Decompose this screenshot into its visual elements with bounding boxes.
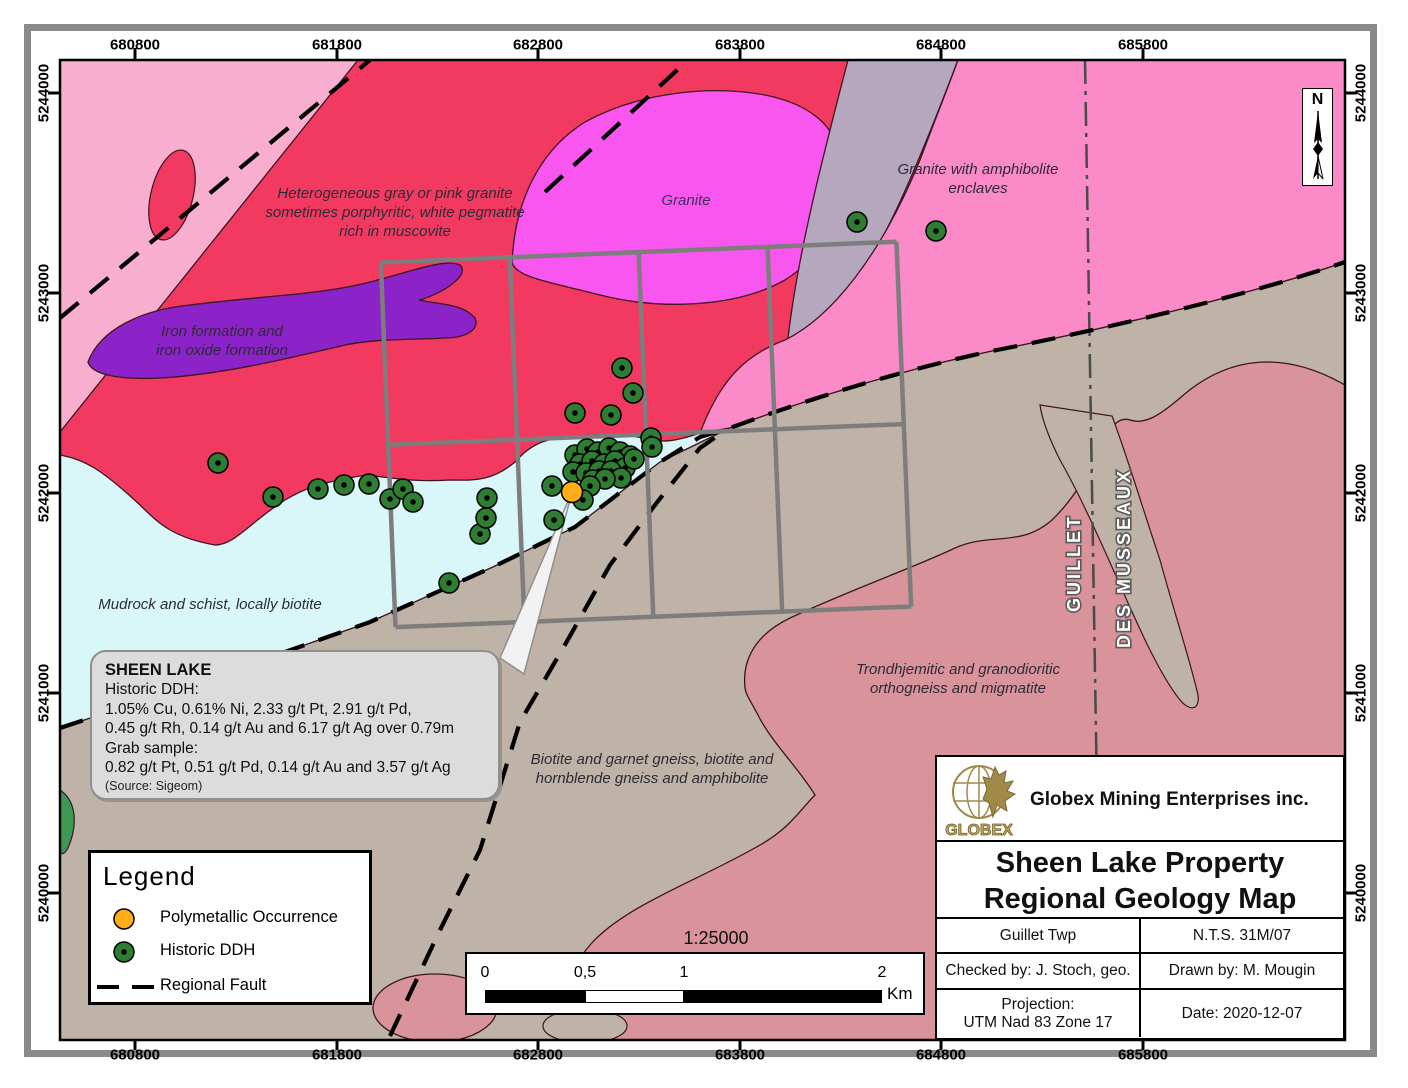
label-mudrock: Mudrock and schist, locally biotite (98, 595, 321, 614)
coordinate-label: 680800 (110, 1047, 160, 1064)
township-nts-row: Guillet Twp N.T.S. 31M/07 (937, 919, 1343, 954)
callout-source: (Source: Sigeom) (105, 778, 498, 794)
legend-title: Legend (103, 861, 196, 892)
projection-date-row: Projection: UTM Nad 83 Zone 17 Date: 202… (937, 990, 1343, 1037)
label-iron-formation: Iron formation and iron oxide formation (156, 322, 288, 360)
legend-box: Legend Polymetallic Occurrence Historic … (88, 850, 372, 1005)
coordinate-label: 680800 (110, 37, 160, 54)
north-label: N (1303, 91, 1332, 109)
company-row: GLOBEX Globex Mining Enterprises inc. (937, 757, 1343, 842)
coordinate-label: 683800 (715, 37, 765, 54)
company-name: Globex Mining Enterprises inc. (1030, 789, 1309, 811)
coordinate-label: 684800 (916, 37, 966, 54)
projection-cell: Projection: UTM Nad 83 Zone 17 (937, 990, 1141, 1037)
callout-title: SHEEN LAKE (105, 660, 498, 680)
coordinate-label: 5243000 (36, 264, 53, 322)
globex-logo-icon: GLOBEX (943, 759, 1031, 841)
title-block: GLOBEX Globex Mining Enterprises inc. Sh… (935, 755, 1345, 1040)
coordinate-label: 681800 (312, 1047, 362, 1064)
coordinate-label: 5240000 (1353, 864, 1370, 922)
map-sheet: GUILLET DES MUSSEAUX Heterogeneous gray … (0, 0, 1408, 1088)
coordinate-label: 684800 (916, 1047, 966, 1064)
label-granite-amphibolite: Granite with amphibolite enclaves (898, 160, 1059, 198)
scale-bar: 0 0,5 1 2 Km (465, 952, 925, 1015)
drawn-by-cell: Drawn by: M. Mougin (1141, 954, 1343, 988)
coordinate-label: 683800 (715, 1047, 765, 1064)
coordinate-label: 5242000 (36, 464, 53, 522)
logo-wordmark: GLOBEX (945, 822, 1013, 839)
coordinate-label: 5242000 (1353, 464, 1370, 522)
coordinate-label: 685800 (1118, 37, 1168, 54)
coordinate-label: 5240000 (36, 864, 53, 922)
coordinate-label: 5244000 (1353, 64, 1370, 122)
label-orthogneiss: Trondhjemitic and granodioritic orthogne… (856, 660, 1060, 698)
label-granite: Granite (661, 191, 710, 210)
north-arrow: N (1302, 88, 1333, 186)
map-title: Sheen Lake Property Regional Geology Map (937, 842, 1343, 919)
scale-unit: Km (887, 984, 913, 1004)
fault-line-icon (97, 975, 155, 999)
legend-item-occurrence: Polymetallic Occurrence (91, 907, 369, 931)
township-cell: Guillet Twp (937, 919, 1141, 952)
coordinate-label: 681800 (312, 37, 362, 54)
coordinate-label: 5244000 (36, 64, 53, 122)
label-heterogeneous-granite: Heterogeneous gray or pink granite somet… (265, 184, 524, 241)
checked-by-cell: Checked by: J. Stoch, geo. (937, 954, 1141, 988)
sheen-lake-callout: SHEEN LAKE Historic DDH: 1.05% Cu, 0.61%… (90, 650, 500, 800)
nts-cell: N.T.S. 31M/07 (1141, 919, 1343, 952)
coordinate-label: 5243000 (1353, 264, 1370, 322)
credits-row: Checked by: J. Stoch, geo. Drawn by: M. … (937, 954, 1343, 990)
scale-seg-1 (485, 990, 585, 1003)
coordinate-label: 685800 (1118, 1047, 1168, 1064)
date-cell: Date: 2020-12-07 (1141, 990, 1343, 1037)
scale-seg-2 (585, 990, 684, 1003)
legend-item-ddh: Historic DDH (91, 940, 369, 964)
legend-item-fault: Regional Fault (91, 975, 369, 999)
coordinate-label: 682800 (513, 1047, 563, 1064)
coordinate-label: 5241000 (36, 664, 53, 722)
scale-seg-3 (684, 990, 882, 1003)
compass-needle-icon (1308, 109, 1328, 181)
label-biotite-gneiss: Biotite and garnet gneiss, biotite and h… (531, 750, 774, 788)
ddh-dot-icon (111, 940, 137, 964)
coordinate-label: 682800 (513, 37, 563, 54)
occurrence-dot-icon (111, 907, 137, 931)
scale-ratio: 1:25000 (683, 928, 748, 949)
coordinate-label: 5241000 (1353, 664, 1370, 722)
